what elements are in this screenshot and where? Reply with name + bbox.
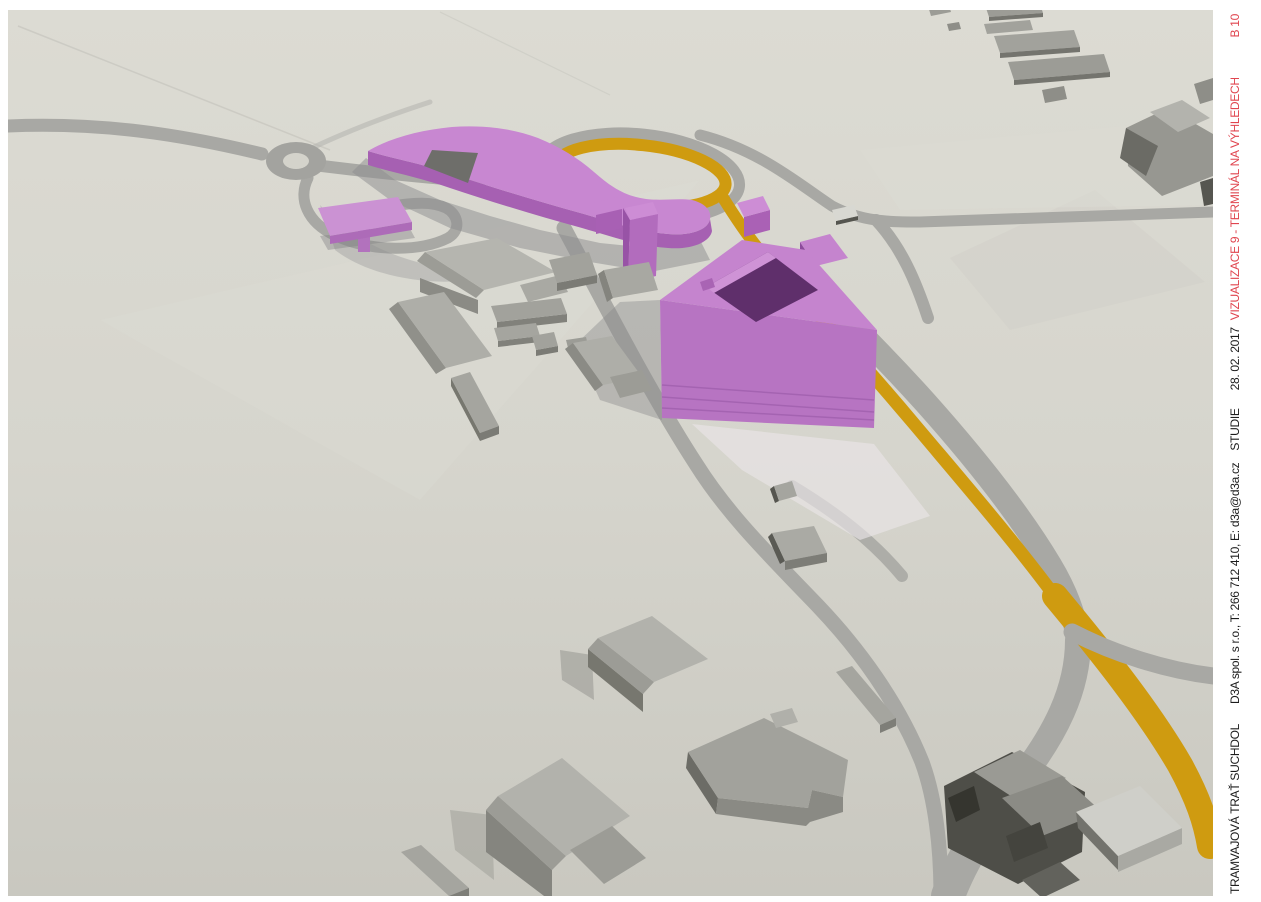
date-label: 28. 02. 2017 bbox=[1228, 327, 1242, 390]
company-contact: D3A spol. s r.o., T: 266 712 410, E: d3a… bbox=[1228, 463, 1242, 704]
roundabout bbox=[266, 142, 326, 180]
phase-label: STUDIE bbox=[1228, 408, 1242, 450]
title-block: TRAMVAJOVÁ TRAŤ SUCHDOL D3A spol. s r.o.… bbox=[1213, 10, 1261, 896]
project-title: TRAMVAJOVÁ TRAŤ SUCHDOL bbox=[1228, 724, 1242, 894]
drawing-title: VIZUALIZACE 9 - TERMINÁL NA VÝHLEDECH bbox=[1228, 77, 1242, 320]
drawing-sheet: TRAMVAJOVÁ TRAŤ SUCHDOL D3A spol. s r.o.… bbox=[0, 0, 1261, 902]
drawing-number: B 10 bbox=[1228, 14, 1242, 38]
visualization-render bbox=[8, 10, 1213, 896]
site-plan-render bbox=[8, 10, 1213, 896]
